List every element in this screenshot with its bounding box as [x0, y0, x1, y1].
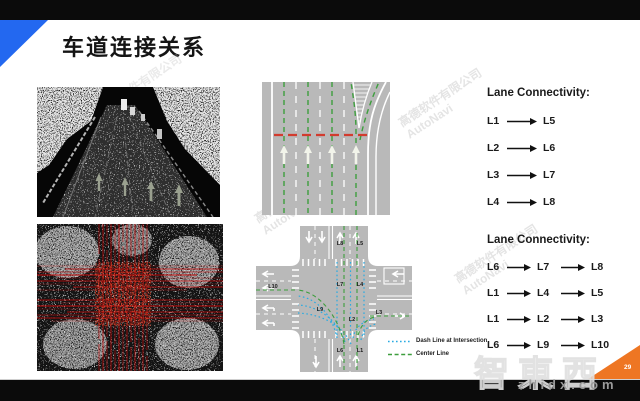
corner-accent-shape: [0, 20, 48, 67]
lane-connectivity-list-1: Lane Connectivity: L1 L5 L2 L6 L3 L7 L4 …: [487, 87, 637, 208]
lane-from: L1: [487, 287, 507, 299]
arrow-right-icon: [507, 171, 537, 180]
arrow-right-icon: [507, 289, 531, 298]
lane-connectivity-heading: Lane Connectivity:: [487, 87, 637, 100]
lane-connectivity-heading: Lane Connectivity:: [487, 234, 637, 247]
lane-connection-row: L6 L7 L8: [487, 261, 637, 273]
lane-connection-row: L1 L4 L5: [487, 287, 637, 299]
lidar-highway-image: [37, 87, 220, 217]
lane-label: L7: [337, 282, 343, 288]
arrow-right-icon: [507, 263, 531, 272]
legend-center-line: Center Line: [388, 351, 449, 357]
lane-connection-row: L3 L7: [487, 169, 637, 181]
lane-to: L5: [543, 115, 569, 127]
center-line-sample-icon: [388, 352, 412, 357]
lane-via: L7: [537, 261, 561, 273]
lane-from: L1: [487, 313, 507, 325]
lane-label: L9: [317, 307, 323, 313]
lane-from: L3: [487, 169, 507, 181]
company-watermark: 高德软件有限公司AutoNavi: [396, 66, 492, 142]
legend-dash-line: Dash Line at Intersection: [388, 338, 487, 344]
legend-label: Center Line: [416, 351, 449, 357]
lane-connection-row: L2 L6: [487, 142, 637, 154]
lane-to: L3: [591, 313, 617, 325]
legend-label: Dash Line at Intersection: [416, 338, 487, 344]
lane-label: L8: [337, 241, 343, 247]
arrow-right-icon: [561, 289, 585, 298]
lane-from: L6: [487, 261, 507, 273]
lane-connectivity-list-2: Lane Connectivity: L6 L7 L8 L1 L4 L5 L1 …: [487, 234, 637, 351]
lane-label: L1: [357, 348, 363, 354]
arrow-right-icon: [561, 315, 585, 324]
lane-label: L2: [349, 317, 355, 323]
lane-to: L5: [591, 287, 617, 299]
lane-from: L2: [487, 142, 507, 154]
lidar-intersection-image: [37, 224, 223, 371]
lane-to: L8: [591, 261, 617, 273]
lane-label: L5: [357, 241, 363, 247]
page-title: 车道连接关系: [62, 30, 206, 62]
zhidx-site-watermark: zhidx.com: [518, 377, 618, 392]
lane-label: L4: [357, 282, 364, 288]
lane-connection-row: L1 L5: [487, 115, 637, 127]
lane-label: L6: [337, 348, 343, 354]
lane-label: L3: [376, 310, 382, 316]
top-bar: [0, 0, 640, 20]
lane-via: L4: [537, 287, 561, 299]
lane-from: L1: [487, 115, 507, 127]
lane-connection-row: L1 L2 L3: [487, 313, 637, 325]
lane-connection-row: L4 L8: [487, 196, 637, 208]
road-segment-diagram: [262, 82, 390, 215]
arrow-right-icon: [507, 144, 537, 153]
lane-to: L7: [543, 169, 569, 181]
dash-line-sample-icon: [388, 339, 412, 344]
lane-from: L4: [487, 196, 507, 208]
lane-to: L6: [543, 142, 569, 154]
arrow-right-icon: [507, 117, 537, 126]
lane-via: L2: [537, 313, 561, 325]
lane-label: L10: [268, 284, 277, 290]
lane-to: L8: [543, 196, 569, 208]
arrow-right-icon: [507, 315, 531, 324]
arrow-right-icon: [561, 263, 585, 272]
arrow-right-icon: [507, 198, 537, 207]
page-number: 29: [624, 364, 631, 371]
